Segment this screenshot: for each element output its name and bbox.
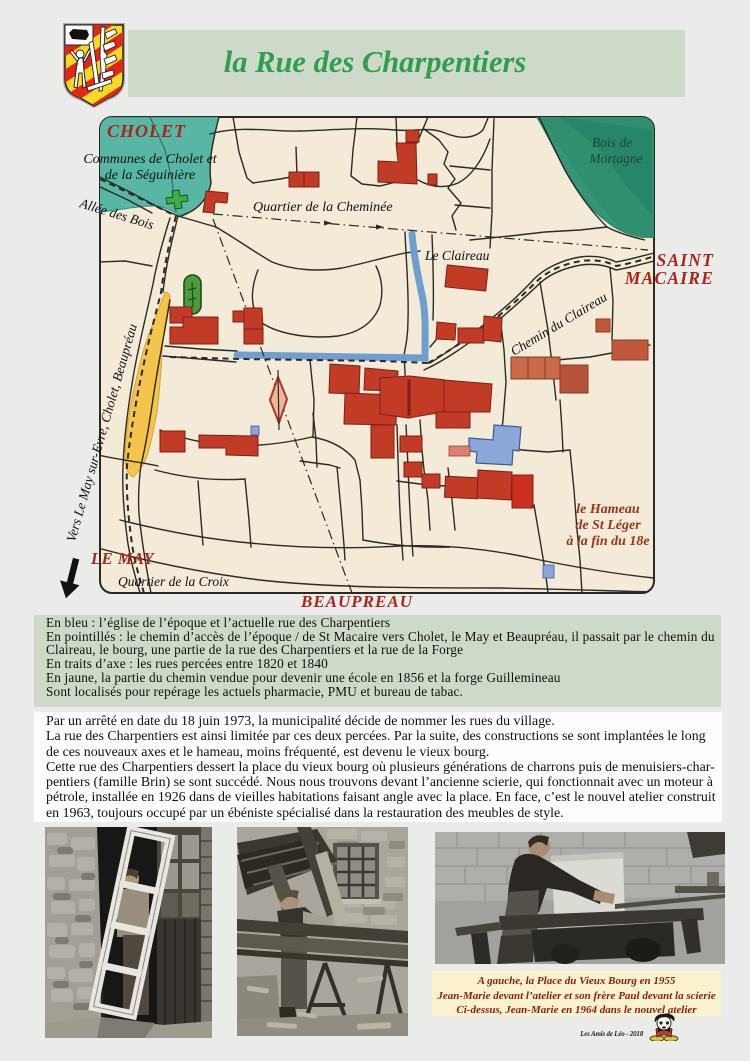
svg-text:Mortagne: Mortagne <box>588 151 642 166</box>
svg-text:SAINT: SAINT <box>656 250 714 270</box>
svg-text:Bois de: Bois de <box>592 135 632 150</box>
svg-text:de la Séguinière: de la Séguinière <box>105 168 195 183</box>
svg-text:Quartier de la Croix: Quartier de la Croix <box>118 574 229 589</box>
svg-text:de St Léger: de St Léger <box>575 518 641 533</box>
svg-text:Le Claireau: Le Claireau <box>424 248 490 263</box>
svg-text:MACAIRE: MACAIRE <box>624 268 714 288</box>
svg-text:BEAUPREAU: BEAUPREAU <box>300 592 413 610</box>
svg-text:LE MAY: LE MAY <box>90 549 155 568</box>
svg-text:Quartier de la Cheminée: Quartier de la Cheminée <box>253 200 393 215</box>
svg-text:à la fin du 18e: à la fin du 18e <box>566 534 649 549</box>
svg-text:CHOLET: CHOLET <box>107 121 186 141</box>
svg-text:Communes de Cholet et: Communes de Cholet et <box>83 152 217 167</box>
svg-text:le Hameau: le Hameau <box>576 502 640 517</box>
